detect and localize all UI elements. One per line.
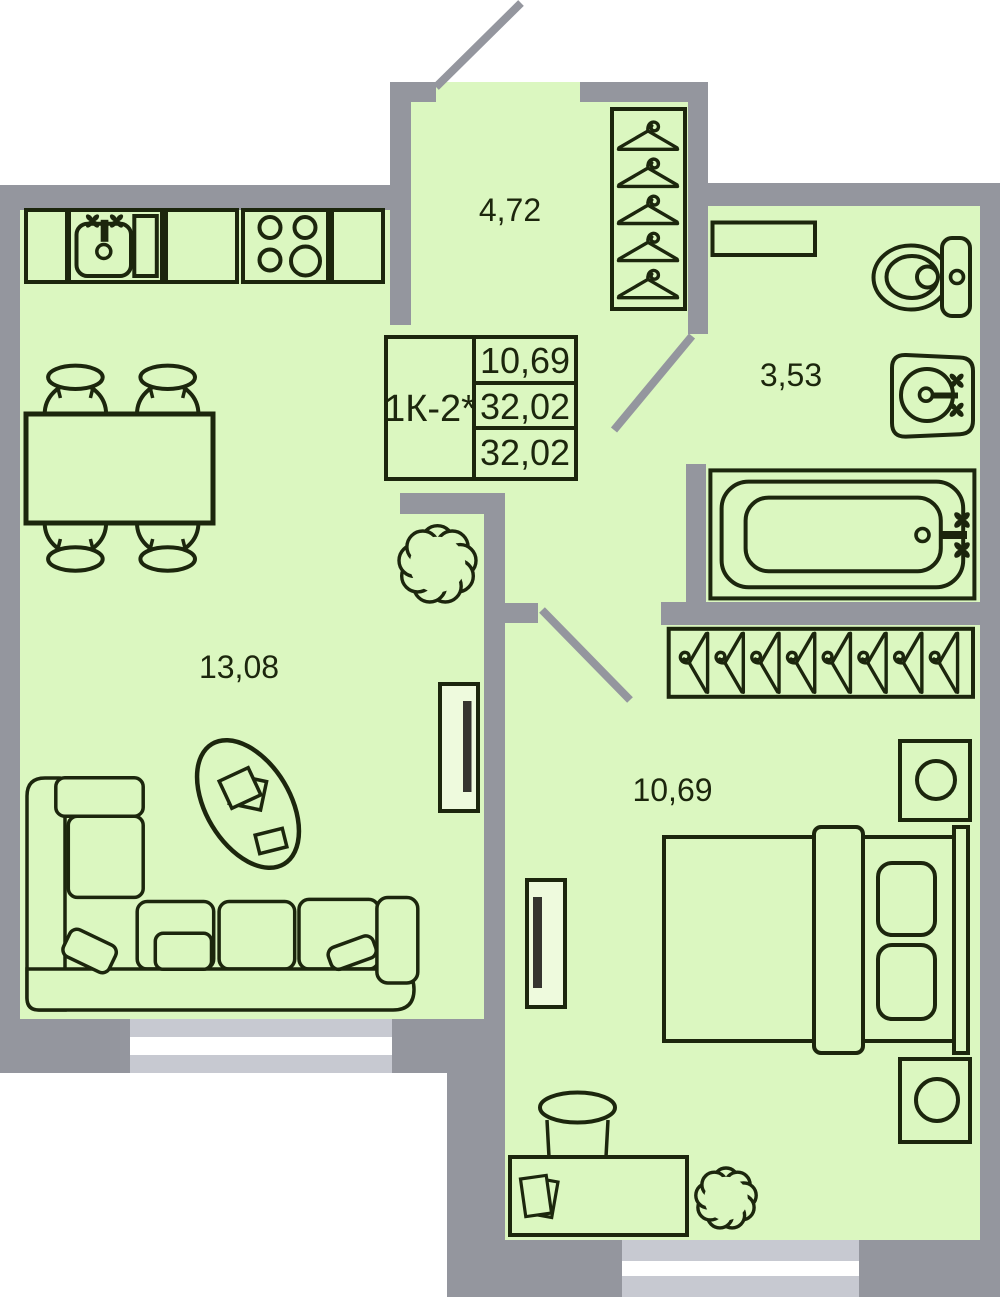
svg-text:10,69: 10,69 xyxy=(480,340,570,381)
svg-text:1К-2*: 1К-2* xyxy=(384,388,476,430)
svg-text:32,02: 32,02 xyxy=(480,386,570,427)
svg-text:3,53: 3,53 xyxy=(760,357,822,393)
svg-text:13,08: 13,08 xyxy=(199,649,279,685)
svg-text:10,69: 10,69 xyxy=(632,772,712,808)
svg-text:4,72: 4,72 xyxy=(479,192,541,228)
svg-text:32,02: 32,02 xyxy=(480,432,570,473)
